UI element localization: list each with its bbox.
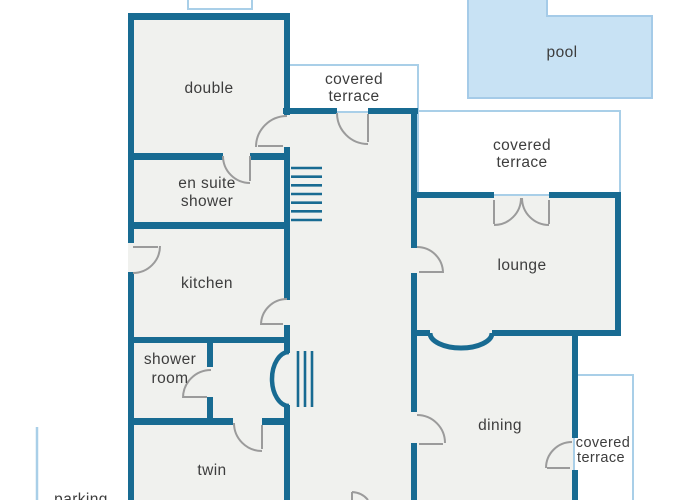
label-pool: pool (547, 44, 578, 61)
wall-segment (250, 153, 290, 160)
wall-segment (128, 153, 223, 160)
label-terrace-top-line1: covered (325, 71, 383, 88)
label-kitchen: kitchen (181, 275, 233, 292)
wall-segment (128, 13, 290, 20)
wall-segment (128, 222, 290, 229)
wall-segment (615, 192, 621, 336)
label-parking: parking (54, 491, 108, 500)
wall-segment (492, 330, 621, 336)
wall-segment (411, 192, 494, 198)
label-shower-room-line1: shower (144, 351, 196, 368)
curved-stair-wall (272, 352, 289, 406)
floor-plan-canvas: double en suite shower kitchen shower ro… (0, 0, 700, 500)
wall-segment (572, 470, 578, 500)
wall-segment (411, 443, 417, 500)
label-twin: twin (197, 462, 226, 479)
wall-segment (368, 108, 418, 114)
wall-segment (411, 112, 417, 248)
label-dining: dining (478, 417, 522, 434)
label-double: double (185, 80, 234, 97)
wall-segment (262, 418, 290, 425)
wall-segment (549, 192, 621, 198)
label-shower-room-line2: room (152, 370, 189, 387)
floor-plan: double en suite shower kitchen shower ro… (0, 0, 700, 500)
wall-segment (283, 108, 337, 114)
wall-segment (128, 418, 233, 425)
wall-segment (128, 13, 134, 243)
label-terrace-br-line1: covered (576, 435, 630, 451)
label-terrace-top-line2: terrace (328, 88, 379, 105)
dining-fill (411, 330, 578, 500)
label-en-suite-line2: shower (181, 193, 233, 210)
wall-segment (411, 273, 417, 412)
wall-segment (207, 337, 213, 367)
label-terrace-right-line2: terrace (496, 154, 547, 171)
wall-segment (284, 13, 290, 115)
label-en-suite-line1: en suite (178, 175, 236, 192)
label-terrace-br-line2: terrace (577, 450, 625, 466)
small-terrace-box (188, 0, 252, 9)
label-lounge: lounge (498, 257, 547, 274)
label-terrace-right-line1: covered (493, 137, 551, 154)
wall-segment (128, 272, 134, 500)
wall-segment (572, 330, 578, 438)
